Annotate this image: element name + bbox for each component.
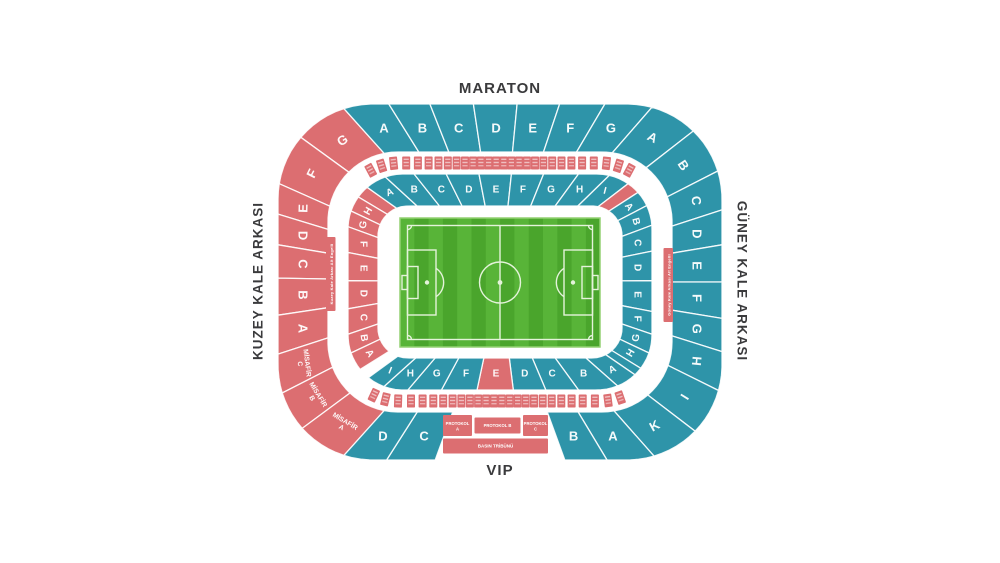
loca-box[interactable] [506,395,514,408]
section-label: B [569,429,578,444]
section-label: D [632,264,643,271]
section-label: G [433,369,441,380]
loca-box[interactable] [461,157,469,170]
section-label: E [358,265,369,272]
section-label: E [493,369,500,380]
vip-stand-label: VIP [0,462,1000,479]
protokol-box-1[interactable]: PROTOKOLA [443,415,472,436]
loca-box[interactable] [558,157,566,170]
section-label: C [454,121,464,136]
protokol-box-label: PROTOKOL B [484,423,512,428]
loca-box[interactable] [614,390,626,405]
section-label: B [580,369,587,380]
press-tribune-label: BASIN TRİBÜNÜ [478,443,514,449]
section-label: H [689,356,705,367]
loca-box[interactable] [449,395,457,408]
section-label: H [407,369,414,380]
loca-box[interactable] [507,157,515,170]
loca-box[interactable] [568,395,576,408]
section-label: F [358,241,369,247]
loca-box[interactable] [389,156,398,170]
loca-box[interactable] [444,157,452,170]
loca-box[interactable] [490,395,498,408]
section-label: F [690,294,705,302]
loca-box[interactable] [492,157,500,170]
loca-box[interactable] [419,395,427,408]
protokol-box-3[interactable]: PROTOKOLC [523,415,548,436]
section-label: G [690,324,705,334]
section-label: B [411,185,418,196]
section-label: F [463,369,469,380]
section-label: D [690,229,705,238]
loca-box[interactable] [514,395,522,408]
loca-box[interactable] [482,395,490,408]
section-label: C [438,185,445,196]
section-label: C [419,429,429,444]
loca-box[interactable] [602,156,611,170]
section-label: E [632,291,643,298]
loca-box[interactable] [548,157,556,170]
loca-box[interactable] [522,395,530,408]
section-label: B [418,121,427,136]
loca-box[interactable] [530,395,538,408]
section-label: D [491,121,500,136]
loca-box[interactable] [453,157,461,170]
loca-box[interactable] [429,395,437,408]
loca-box[interactable] [435,157,443,170]
loca-box[interactable] [474,395,482,408]
section-label: A [608,429,618,444]
loca-box[interactable] [466,395,474,408]
loca-box[interactable] [367,388,380,403]
loca-box[interactable] [623,163,636,178]
penalty-spot-left [426,281,429,284]
loca-box[interactable] [523,157,531,170]
loca-box[interactable] [613,158,625,173]
loca-box[interactable] [531,157,539,170]
section-label: C [632,239,643,246]
section-label: D [296,231,311,240]
guney-kale-arkasi-stand-label: GÜNEY KALE ARKASI [735,201,750,361]
section-label: G [547,185,555,196]
loca-box[interactable] [477,157,485,170]
loca-box[interactable] [557,395,565,408]
protocol-area: PROTOKOLAPROTOKOL BPROTOKOLCBASIN TRİBÜN… [443,415,548,454]
loca-box[interactable] [414,157,422,170]
loca-box[interactable] [515,157,523,170]
press-tribune-box[interactable]: BASIN TRİBÜNÜ [443,439,548,454]
loca-box[interactable] [364,163,377,178]
loca-box[interactable] [439,395,447,408]
accessible-strip-right[interactable]: Güney Kale Arkası Alt Engelli [664,248,674,322]
loca-box[interactable] [539,157,547,170]
football-pitch [400,218,600,347]
section-label: G [606,121,616,136]
section-label: F [632,316,643,322]
loca-box[interactable] [591,395,599,408]
center-spot [498,281,501,284]
loca-box[interactable] [457,395,465,408]
section-label: D [378,428,388,443]
loca-box[interactable] [402,157,410,170]
section-label: E [690,261,705,270]
loca-box[interactable] [539,395,547,408]
accessible-strip-left[interactable]: Kuzey Kale Arkası Alt Engelli [326,237,336,311]
loca-box[interactable] [590,157,598,170]
loca-box[interactable] [485,157,493,170]
penalty-spot-right [572,281,575,284]
loca-box[interactable] [579,395,587,408]
accessible-strip-label: Kuzey Kale Arkası Alt Engelli [329,244,334,305]
section-label: C [296,259,311,269]
kuzey-kale-arkasi-stand-label: KUZEY KALE ARKASI [251,202,266,360]
loca-box[interactable] [380,392,391,407]
section-label: D [521,369,528,380]
loca-box[interactable] [567,157,575,170]
loca-box[interactable] [394,394,402,407]
section-label: E [295,204,310,213]
loca-box[interactable] [469,157,477,170]
loca-box[interactable] [603,394,613,408]
section-label: F [566,121,574,136]
section-label: D [465,185,472,196]
loca-box[interactable] [498,395,506,408]
section-label: H [576,185,583,196]
loca-box[interactable] [500,157,508,170]
protokol-box-2[interactable]: PROTOKOL B [475,418,521,434]
section-label: E [493,185,500,196]
loca-box[interactable] [425,157,433,170]
section-label: C [358,314,369,321]
loca-box[interactable] [407,395,415,408]
loca-box[interactable] [548,395,556,408]
loca-box[interactable] [578,157,586,170]
accessible-strip-label: Güney Kale Arkası Alt Engelli [666,254,671,316]
maraton-stand-label: MARATON [0,80,1000,97]
loca-box[interactable] [376,158,388,173]
section-label: D [358,290,369,297]
section-label: C [548,369,555,380]
section-label: B [296,290,311,299]
section-label: E [528,121,537,136]
stadium-seating-map: GFEDCBAMİSAFİRCMİSAFİRBMİSAFİRAABCDEFGAB… [0,0,1000,563]
section-label: A [379,120,389,135]
section-label: F [520,185,526,196]
section-label: A [296,324,311,334]
